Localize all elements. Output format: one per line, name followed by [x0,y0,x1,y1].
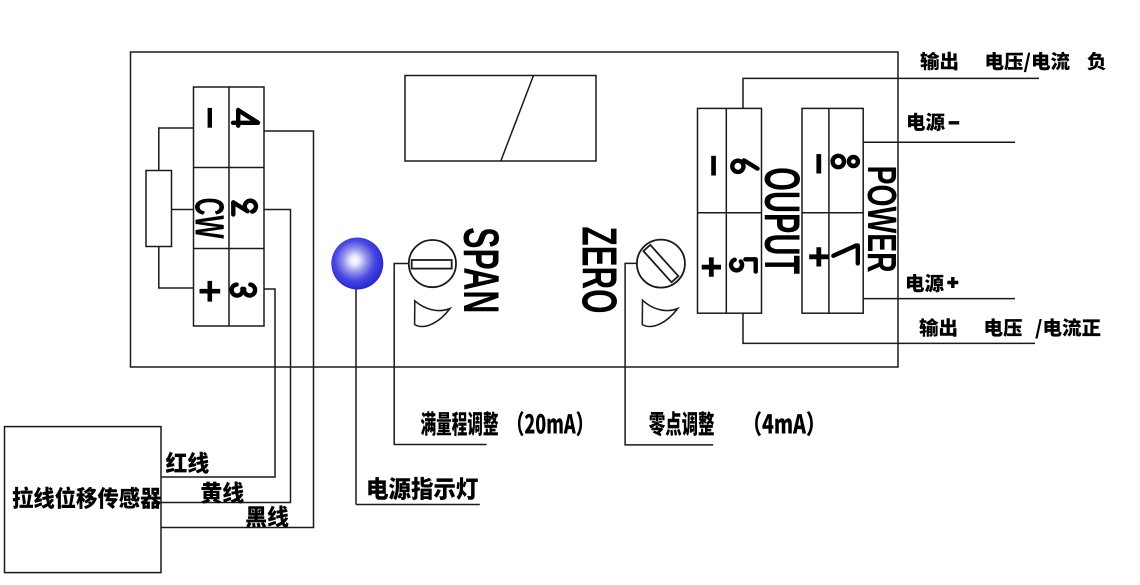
svg-text:POWER: POWER [859,166,905,273]
svg-text:ZERO: ZERO [572,227,626,314]
svg-text:SPAN: SPAN [453,227,509,313]
svg-text:CW: CW [186,198,232,239]
